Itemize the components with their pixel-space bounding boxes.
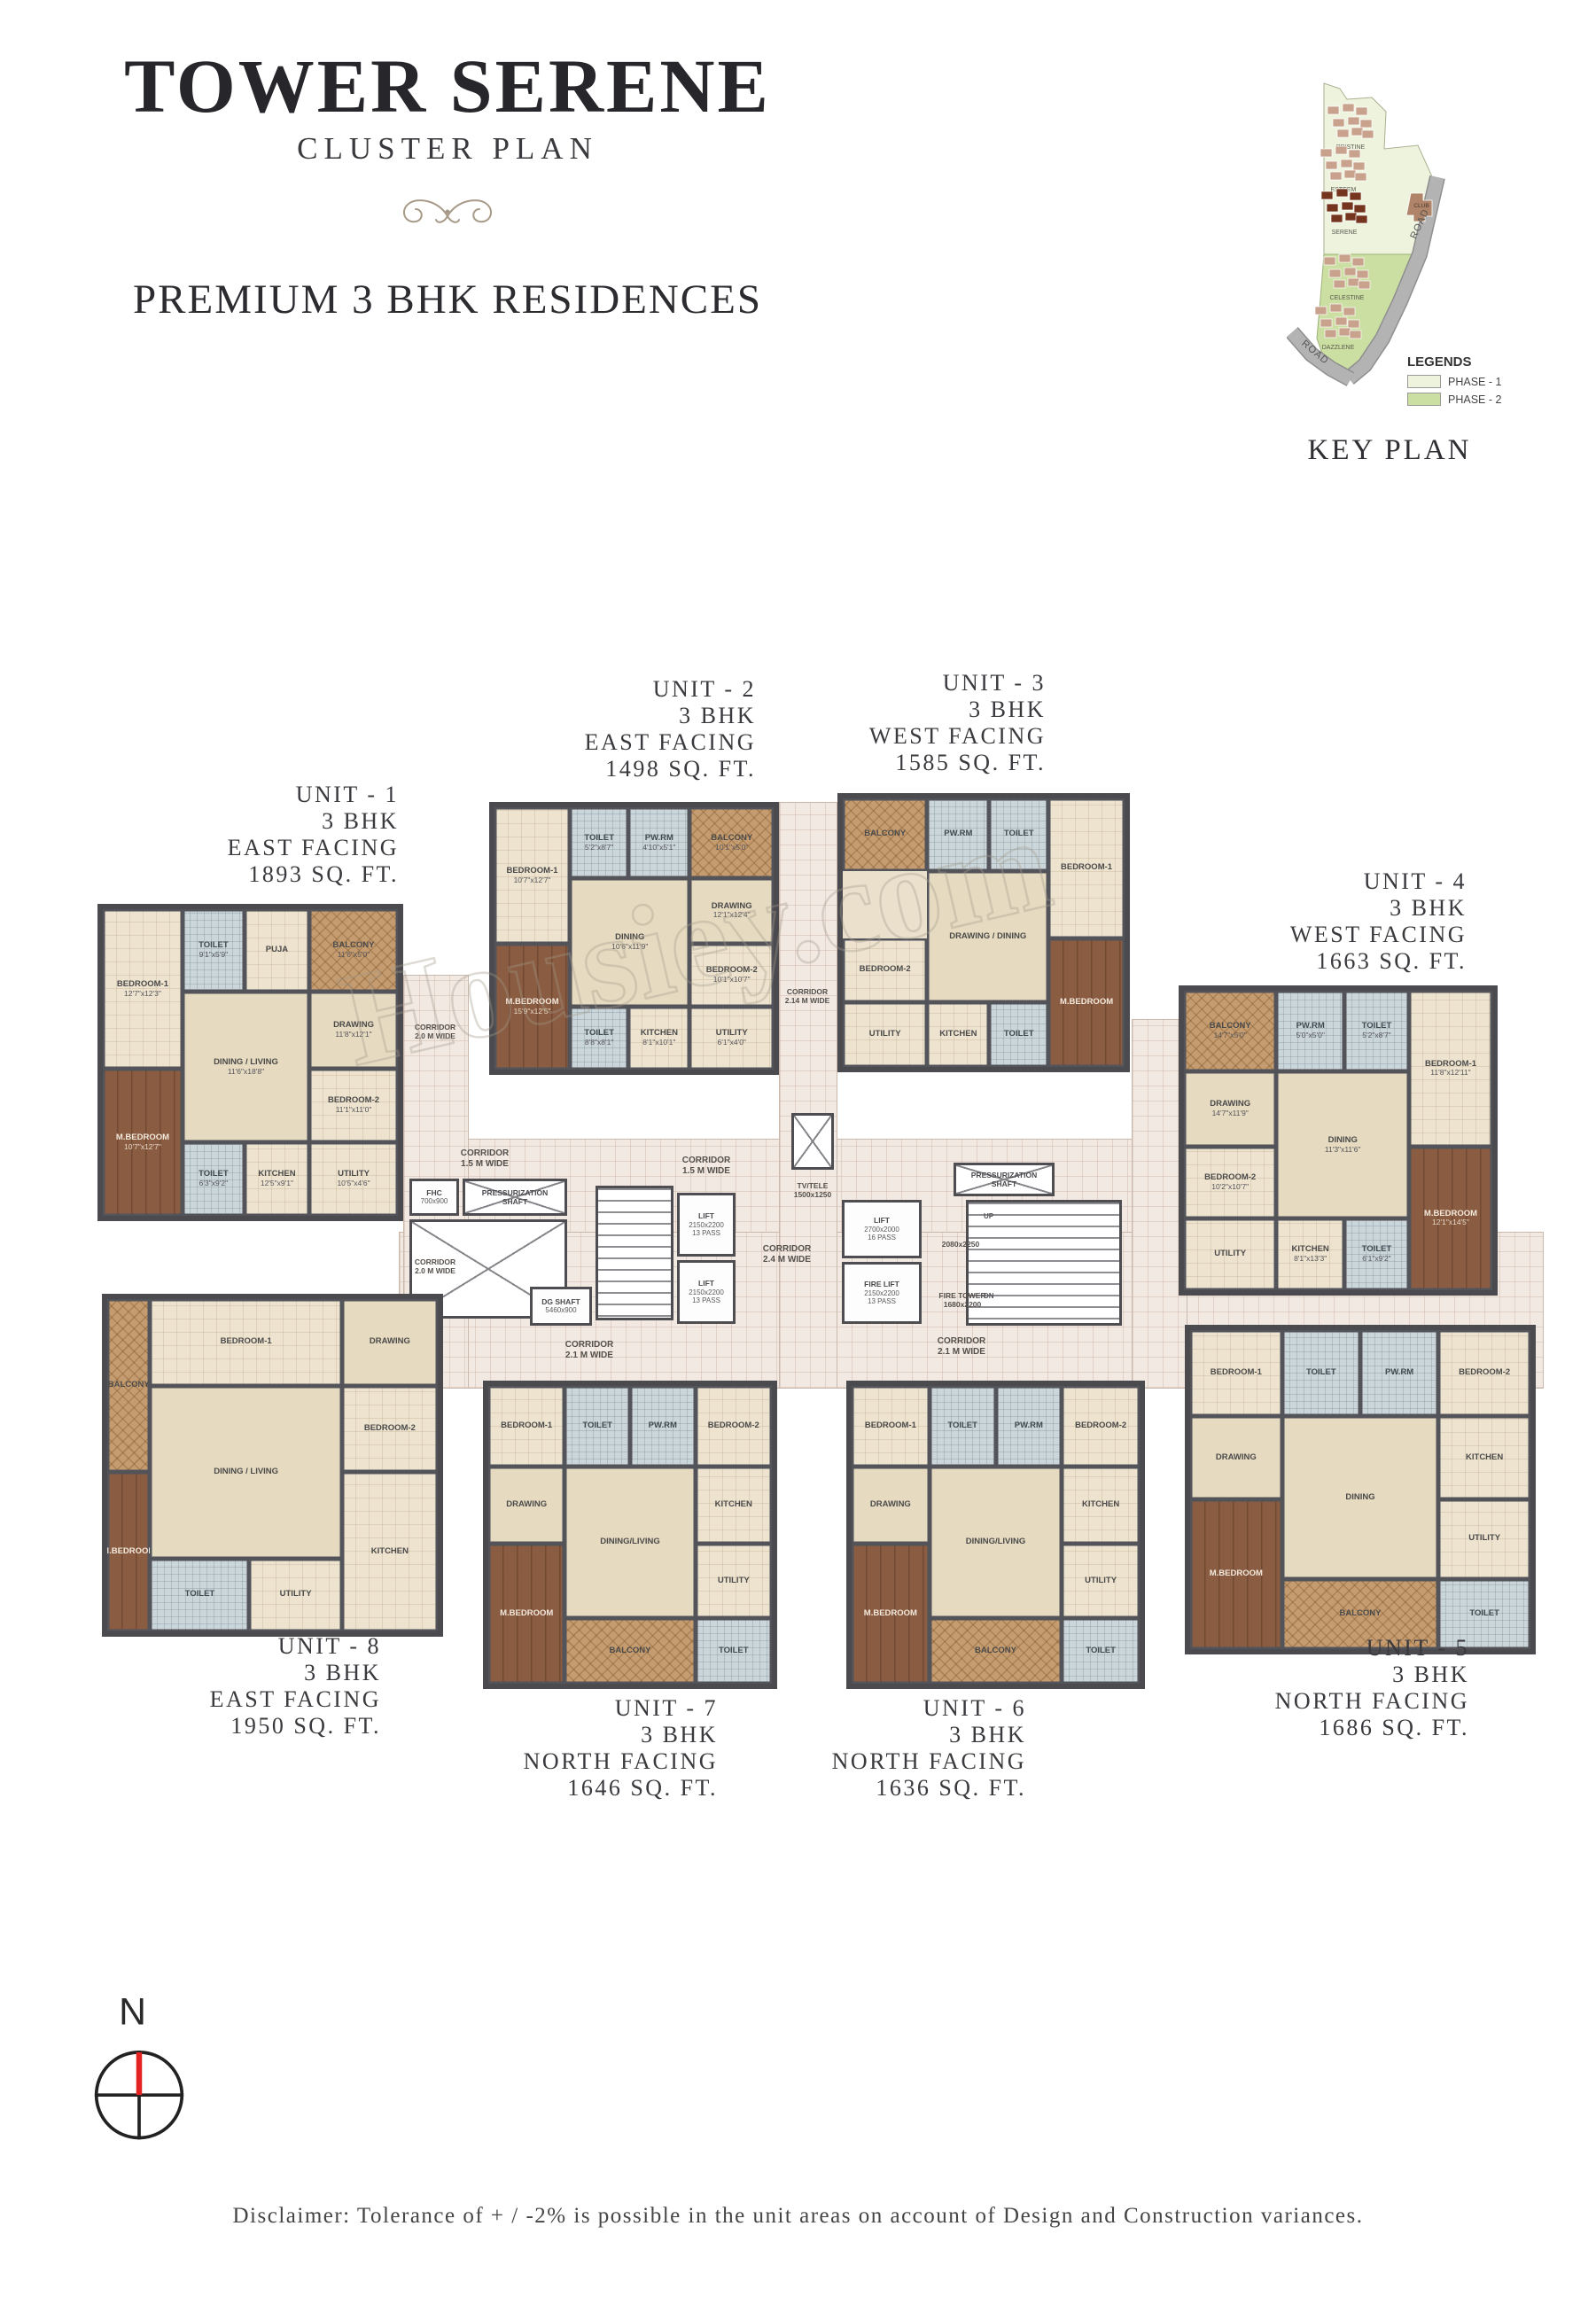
- unit-6-label: UNIT - 63 BHKNORTH FACING1636 SQ. FT.: [822, 1695, 1026, 1802]
- unit-5-room-b1-bedroom-1: BEDROOM-1: [1190, 1330, 1282, 1416]
- unit-2-label: UNIT - 23 BHKEAST FACING1498 SQ. FT.: [549, 676, 756, 782]
- unit-1-room-bal-balcony: BALCONY11'6"x5'0": [309, 909, 398, 992]
- room-label: DRAWING: [370, 1337, 410, 1347]
- legends: LEGENDS PHASE - 1 PHASE - 2: [1407, 354, 1501, 410]
- legends-title: LEGENDS: [1407, 354, 1501, 370]
- room-label: BEDROOM-1: [221, 1337, 272, 1347]
- unit-5-room-liv-dining: DINING: [1282, 1416, 1439, 1579]
- room-dimension: 8'1"x10'1": [642, 1039, 675, 1047]
- lift-2-dim: 2150x2200: [689, 1288, 724, 1297]
- unit-2-room-t2-toilet: TOILET8'8"x8'1": [570, 1007, 628, 1070]
- compass-north-label: N: [119, 1990, 146, 2033]
- unit-2-room-dr-drawing: DRAWING12'1"x12'4": [689, 878, 774, 944]
- corridor-1-5-label-b: CORRIDOR 1.5 M WIDE: [658, 1156, 755, 1176]
- lift-2-cap: 13 PASS: [692, 1296, 720, 1305]
- room-label: BALCONY: [108, 1381, 150, 1390]
- room-label: M.BEDROOM: [107, 1547, 150, 1557]
- room-label: TOILET: [185, 1590, 215, 1600]
- unit-6-bhk: 3 BHK: [822, 1722, 1026, 1748]
- unit-2-room-liv-dining: DINING10'6"x11'9": [570, 878, 689, 1007]
- room-label: UTILITY: [1214, 1249, 1246, 1259]
- fire-tower-dim: 1680x2200: [944, 1300, 982, 1309]
- fire-tower-text: FIRE TOWER: [938, 1291, 985, 1300]
- unit-7-room-liv-dining-living: DINING/LIVING: [564, 1467, 695, 1618]
- fire-lift-label: FIRE LIFT: [864, 1280, 899, 1288]
- unit-5-bhk: 3 BHK: [1265, 1662, 1469, 1688]
- room-label: BEDROOM-1: [506, 867, 557, 876]
- unit-8-room-b2-bedroom-2: BEDROOM-2: [342, 1386, 438, 1473]
- room-dimension: 10'5"x4'6": [337, 1179, 370, 1188]
- room-dimension: 10'2"x10'7": [1211, 1183, 1249, 1192]
- press-left-label: PRESSURIZATION SHAFT: [482, 1188, 548, 1206]
- room-dimension: 12'5"x9'1": [261, 1179, 293, 1188]
- unit-7-bhk: 3 BHK: [514, 1722, 718, 1748]
- room-label: TOILET: [1086, 1646, 1116, 1656]
- unit-1-room-liv-dining-living: DINING / LIVING11'6"x18'8": [183, 992, 309, 1142]
- room-label: UTILITY: [280, 1590, 312, 1600]
- lift-2: LIFT 2150x2200 13 PASS: [677, 1260, 736, 1324]
- unit-4-floor-plan: BALCONY14'7"x5'0"PW.RM5'0"x5'0"TOILET5'2…: [1179, 985, 1498, 1296]
- lift-1: LIFT 2150x2200 13 PASS: [677, 1193, 736, 1257]
- room-dimension: 11'6"x18'8": [228, 1068, 264, 1077]
- unit-4-room-dr-drawing: DRAWING14'7"x11'9": [1184, 1071, 1276, 1147]
- tv-tele-shaft: [791, 1113, 834, 1170]
- unit-6-room-dr-drawing: DRAWING: [852, 1467, 930, 1544]
- room-dimension: 14'7"x5'0": [1214, 1031, 1247, 1040]
- unit-1-label: UNIT - 13 BHKEAST FACING1893 SQ. FT.: [195, 782, 399, 888]
- room-label: BEDROOM-2: [1459, 1368, 1510, 1378]
- room-label: BEDROOM-2: [364, 1424, 416, 1434]
- cluster-plan-sheet: TOWER SERENE CLUSTER PLAN PREMIUM 3 BHK …: [0, 0, 1596, 2304]
- unit-6-room-pw-pw-rm: PW.RM: [996, 1386, 1063, 1467]
- unit-8-room-m-m-bedroom: M.BEDROOM: [107, 1472, 150, 1631]
- dg-shaft: DG SHAFT 5460x900: [530, 1287, 592, 1326]
- fhc-shaft: FHC 700x900: [409, 1179, 459, 1216]
- room-label: TOILET: [1004, 1030, 1034, 1039]
- unit-1-room-k-kitchen: KITCHEN12'5"x9'1": [245, 1142, 309, 1216]
- phase1-label: PHASE - 1: [1448, 376, 1501, 388]
- room-label: PUJA: [266, 946, 288, 955]
- cluster-label-celestine: CELESTINE: [1330, 295, 1365, 301]
- unit-7-room-u-utility: UTILITY: [696, 1544, 772, 1618]
- pressurization-shaft-right: PRESSURIZATION SHAFT: [954, 1163, 1055, 1196]
- page-title: TOWER SERENE: [53, 46, 842, 126]
- unit-3-room-k-kitchen: KITCHEN: [927, 1002, 989, 1067]
- tv-tele-text: TV/TELE: [798, 1181, 829, 1190]
- unit-3-floor-plan: BEDROOM-1TOILETPW.RMBALCONYDRAWING / DIN…: [837, 793, 1130, 1072]
- unit-5-room-pw-pw-rm: PW.RM: [1360, 1330, 1438, 1416]
- unit-1-room-t1-toilet: TOILET9'1"x5'9": [183, 909, 245, 992]
- unit-2-room-m-m-bedroom: M.BEDROOM15'9"x12'5": [494, 944, 570, 1070]
- unit-5-room-b2-bedroom-2: BEDROOM-2: [1438, 1330, 1530, 1416]
- compass-icon: N: [82, 1983, 197, 2165]
- lift-3-dim: 2700x2000: [864, 1226, 899, 1234]
- room-label: BEDROOM-1: [865, 1421, 916, 1431]
- room-dimension: 12'7"x12'3": [124, 990, 161, 999]
- stairs-up-label: UP: [984, 1212, 993, 1220]
- unit-2-floor-plan: BEDROOM-110'7"x12'7"TOILET5'2"x8'7"PW.RM…: [489, 802, 779, 1075]
- room-label: M.BEDROOM: [500, 1609, 553, 1619]
- room-label: KITCHEN: [1082, 1500, 1119, 1510]
- room-label: TOILET: [719, 1646, 749, 1656]
- room-label: DRAWING: [1216, 1453, 1257, 1463]
- fhc-label: FHC: [426, 1188, 441, 1197]
- unit-8-room-k-kitchen: KITCHEN: [342, 1472, 438, 1631]
- unit-3-room-t2-toilet: TOILET: [989, 1002, 1048, 1067]
- unit-1-room-dr-drawing: DRAWING11'8"x12'1": [309, 992, 398, 1069]
- phase1-swatch: [1407, 375, 1441, 388]
- unit-6-room-k-kitchen: KITCHEN: [1062, 1467, 1140, 1544]
- room-label: TOILET: [1004, 829, 1034, 839]
- unit-3-room-liv-drawing-dining: DRAWING / DINING: [927, 871, 1048, 1002]
- room-dimension: 10'6"x11'9": [611, 943, 648, 952]
- unit-4-room-b2-bedroom-2: BEDROOM-210'2"x10'7": [1184, 1147, 1276, 1218]
- unit-1-room-u-utility: UTILITY10'5"x4'6": [309, 1142, 398, 1216]
- unit-6-room-bal-balcony: BALCONY: [930, 1618, 1063, 1684]
- room-dimension: 6'3"x9'2": [199, 1179, 228, 1188]
- unit-7-area: 1646 SQ. FT.: [514, 1775, 718, 1802]
- room-label: BALCONY: [1339, 1609, 1381, 1619]
- room-label: DRAWING: [506, 1500, 547, 1510]
- unit-7-room-m-m-bedroom: M.BEDROOM: [488, 1544, 564, 1684]
- unit-4-room-t2-toilet: TOILET6'1"x9'2": [1344, 1218, 1409, 1290]
- unit-1-room-t2-toilet: TOILET6'3"x9'2": [183, 1142, 245, 1216]
- unit-3-facing: WEST FACING: [842, 723, 1046, 750]
- room-label: BALCONY: [975, 1646, 1016, 1656]
- unit-7-label: UNIT - 73 BHKNORTH FACING1646 SQ. FT.: [514, 1695, 718, 1802]
- dg-shaft-label: DG SHAFT: [541, 1297, 580, 1306]
- disclaimer: Disclaimer: Tolerance of + / -2% is poss…: [0, 2204, 1596, 2229]
- room-label: PW.RM: [1385, 1368, 1413, 1378]
- room-dimension: 10'7"x12'7": [124, 1143, 161, 1152]
- room-label: BALCONY: [711, 834, 752, 844]
- room-dimension: 4'10"x5'1": [642, 844, 675, 852]
- unit-4-room-bal-balcony: BALCONY14'7"x5'0": [1184, 991, 1276, 1071]
- cluster-label-dazzlene: DAZZLENE: [1322, 345, 1355, 351]
- lift-3-cap: 16 PASS: [868, 1234, 896, 1242]
- unit-2-room-t1-toilet: TOILET5'2"x8'7": [570, 807, 628, 878]
- room-dimension: 14'7"x11'9": [1212, 1109, 1249, 1118]
- unit-1-room-m-m-bedroom: M.BEDROOM10'7"x12'7": [103, 1069, 183, 1216]
- room-label: PW.RM: [1015, 1421, 1043, 1431]
- unit-6-floor-plan: BEDROOM-1TOILETPW.RMBEDROOM-2DRAWINGDINI…: [846, 1381, 1145, 1689]
- unit-5-room-u-utility: UTILITY: [1438, 1499, 1530, 1579]
- unit-2-area: 1498 SQ. FT.: [549, 756, 756, 782]
- room-dimension: 11'8"x12'11": [1430, 1069, 1470, 1078]
- unit-7-floor-plan: BEDROOM-1TOILETPW.RMBEDROOM-2DRAWINGDINI…: [483, 1381, 777, 1689]
- unit-4-label: UNIT - 43 BHKWEST FACING1663 SQ. FT.: [1263, 868, 1467, 975]
- room-dimension: 5'0"x5'0": [1296, 1031, 1324, 1040]
- stairs-dn-label: DN: [984, 1292, 994, 1300]
- room-dimension: 12'1"x14'5": [1432, 1218, 1469, 1227]
- unit-5-area: 1686 SQ. FT.: [1265, 1715, 1469, 1741]
- unit-4-name: UNIT - 4: [1263, 868, 1467, 895]
- page-subtitle: CLUSTER PLAN: [53, 131, 842, 167]
- unit-3-bhk: 3 BHK: [842, 697, 1046, 723]
- tagline: PREMIUM 3 BHK RESIDENCES: [53, 276, 842, 323]
- unit-3-room-m-m-bedroom: M.BEDROOM: [1048, 938, 1125, 1067]
- unit-4-room-u-utility: UTILITY: [1184, 1218, 1276, 1290]
- corridor-strip-2: [779, 802, 837, 1389]
- fire-lift: FIRE LIFT 2150x2200 13 PASS: [842, 1262, 922, 1324]
- room-label: UTILITY: [1468, 1534, 1500, 1544]
- room-dimension: 11'6"x5'0": [338, 951, 370, 960]
- unit-4-area: 1663 SQ. FT.: [1263, 948, 1467, 975]
- unit-2-room-k-kitchen: KITCHEN8'1"x10'1": [628, 1007, 689, 1070]
- unit-3-room-u-utility: UTILITY: [843, 1002, 927, 1067]
- room-label: DINING: [1328, 1136, 1358, 1146]
- room-dimension: 5'2"x8'7": [585, 844, 613, 852]
- corridor-2-4-label: CORRIDOR 2.4 M WIDE: [741, 1244, 833, 1265]
- unit-4-room-b1-bedroom-1: BEDROOM-111'8"x12'11": [1409, 991, 1492, 1147]
- unit-1-name: UNIT - 1: [195, 782, 399, 808]
- key-plan-title: KEY PLAN: [1296, 434, 1483, 467]
- corridor-2-0-label-a: CORRIDOR 2.0 M WIDE: [403, 1024, 467, 1041]
- room-label: PW.RM: [944, 829, 972, 839]
- unit-8-room-liv-dining-living: DINING / LIVING: [150, 1386, 341, 1559]
- room-dimension: 11'1"x11'0": [336, 1106, 372, 1115]
- room-label: UTILITY: [1085, 1576, 1117, 1586]
- unit-6-room-t1-toilet: TOILET: [930, 1386, 996, 1467]
- unit-2-facing: EAST FACING: [549, 729, 756, 756]
- unit-8-facing: EAST FACING: [177, 1686, 381, 1713]
- unit-3-room-t1-toilet: TOILET: [989, 798, 1048, 871]
- unit-1-bhk: 3 BHK: [195, 808, 399, 835]
- unit-4-room-m-m-bedroom: M.BEDROOM12'1"x14'5": [1409, 1147, 1492, 1290]
- unit-3-room-bal-balcony: BALCONY: [843, 798, 927, 871]
- room-label: TOILET: [947, 1421, 977, 1431]
- fire-lift-cap: 13 PASS: [868, 1297, 896, 1306]
- room-label: DINING: [1345, 1493, 1374, 1503]
- room-label: DRAWING: [870, 1500, 911, 1510]
- unit-8-room-u-utility: UTILITY: [249, 1559, 341, 1632]
- unit-7-room-b2-bedroom-2: BEDROOM-2: [696, 1386, 772, 1467]
- room-dimension: 8'8"x8'1": [585, 1039, 613, 1047]
- unit-3-name: UNIT - 3: [842, 670, 1046, 697]
- unit-7-room-dr-drawing: DRAWING: [488, 1467, 564, 1544]
- room-label: M.BEDROOM: [864, 1609, 917, 1619]
- unit-7-facing: NORTH FACING: [514, 1748, 718, 1775]
- room-dimension: 10'1"x5'0": [715, 844, 748, 852]
- shaft-dim-label: 2080x2250: [925, 1241, 996, 1249]
- room-label: M.BEDROOM: [116, 1133, 169, 1143]
- unit-1-area: 1893 SQ. FT.: [195, 861, 399, 888]
- fire-lift-dim: 2150x2200: [864, 1289, 899, 1298]
- unit-4-facing: WEST FACING: [1263, 922, 1467, 948]
- unit-6-room-u-utility: UTILITY: [1062, 1544, 1140, 1618]
- room-label: BEDROOM-1: [117, 980, 168, 990]
- room-label: DINING/LIVING: [966, 1537, 1026, 1547]
- corridor-2-1-label-a: CORRIDOR 2.1 M WIDE: [532, 1340, 647, 1360]
- room-label: TOILET: [582, 1421, 612, 1431]
- ornament-flourish-icon: [377, 190, 518, 234]
- room-label: BALCONY: [864, 829, 906, 839]
- unit-3-room-pw-pw-rm: PW.RM: [927, 798, 989, 871]
- unit-8-label: UNIT - 83 BHKEAST FACING1950 SQ. FT.: [177, 1633, 381, 1740]
- unit-8-room-b1-bedroom-1: BEDROOM-1: [150, 1299, 341, 1386]
- room-label: M.BEDROOM: [1060, 998, 1113, 1008]
- tv-tele-label: TV/TELE 1500x1250: [780, 1173, 845, 1199]
- unit-1-room-b2-bedroom-2: BEDROOM-211'1"x11'0": [309, 1069, 398, 1142]
- room-dimension: 9'1"x5'9": [199, 951, 228, 960]
- room-label: BEDROOM-2: [708, 1421, 759, 1431]
- unit-4-bhk: 3 BHK: [1263, 895, 1467, 922]
- legend-row-phase2: PHASE - 2: [1407, 393, 1501, 406]
- unit-1-facing: EAST FACING: [195, 835, 399, 861]
- room-dimension: 6'1"x4'0": [718, 1039, 746, 1047]
- lift-1-cap: 13 PASS: [692, 1229, 720, 1238]
- room-label: UTILITY: [869, 1030, 901, 1039]
- room-label: BEDROOM-2: [1075, 1421, 1126, 1431]
- unit-8-area: 1950 SQ. FT.: [177, 1713, 381, 1740]
- unit-8-bhk: 3 BHK: [177, 1660, 381, 1686]
- corridor-2-0-label-b: CORRIDOR 2.0 M WIDE: [403, 1258, 467, 1276]
- room-label: PW.RM: [645, 834, 673, 844]
- unit-5-room-k-kitchen: KITCHEN: [1438, 1416, 1530, 1499]
- cluster-label-serene: SERENE: [1332, 230, 1358, 236]
- room-label: TOILET: [584, 834, 614, 844]
- room-label: KITCHEN: [371, 1547, 409, 1557]
- unit-3-room-b1-bedroom-1: BEDROOM-1: [1048, 798, 1125, 938]
- dg-shaft-dim: 5460x900: [545, 1306, 576, 1315]
- room-dimension: 12'1"x12'4": [713, 911, 751, 920]
- unit-6-room-b1-bedroom-1: BEDROOM-1: [852, 1386, 930, 1467]
- unit-8-floor-plan: BALCONYBEDROOM-1DRAWINGDINING / LIVINGBE…: [102, 1294, 443, 1637]
- unit-8-room-t2-toilet: TOILET: [150, 1559, 249, 1632]
- pressurization-shaft-left: PRESSURIZATION SHAFT: [463, 1179, 567, 1216]
- unit-2-name: UNIT - 2: [549, 676, 756, 703]
- unit-4-room-k-kitchen: KITCHEN8'1"x13'3": [1276, 1218, 1344, 1290]
- lift-2-label: LIFT: [698, 1279, 714, 1288]
- phase2-label: PHASE - 2: [1448, 393, 1501, 406]
- unit-4-room-pw-pw-rm: PW.RM5'0"x5'0": [1276, 991, 1344, 1071]
- room-label: TOILET: [1469, 1609, 1499, 1619]
- room-dimension: 11'3"x11'6": [1325, 1146, 1361, 1155]
- unit-2-room-u-utility: UTILITY6'1"x4'0": [689, 1007, 774, 1070]
- tv-tele-dim: 1500x1250: [794, 1190, 832, 1199]
- room-label: DRAWING / DINING: [949, 932, 1026, 942]
- unit-6-room-liv-dining-living: DINING/LIVING: [930, 1467, 1063, 1618]
- room-dimension: 10'1"x10'7": [713, 976, 751, 985]
- room-dimension: 10'7"x12'7": [514, 876, 551, 885]
- phase2-swatch: [1407, 393, 1441, 406]
- unit-1-floor-plan: BEDROOM-112'7"x12'3"TOILET9'1"x5'9"PUJAB…: [97, 904, 403, 1221]
- room-label: BEDROOM-1: [1061, 863, 1112, 873]
- lift-1-label: LIFT: [698, 1211, 714, 1220]
- room-label: TOILET: [1306, 1368, 1336, 1378]
- unit-3-label: UNIT - 33 BHKWEST FACING1585 SQ. FT.: [842, 670, 1046, 776]
- room-label: KITCHEN: [939, 1030, 977, 1039]
- room-dimension: 8'1"x13'3": [1294, 1255, 1327, 1264]
- unit-7-room-k-kitchen: KITCHEN: [696, 1467, 772, 1544]
- unit-8-room-bal-balcony: BALCONY: [107, 1299, 150, 1472]
- room-dimension: 6'1"x9'2": [1362, 1255, 1390, 1264]
- unit-6-name: UNIT - 6: [822, 1695, 1026, 1722]
- unit-2-room-bal-balcony: BALCONY10'1"x5'0": [689, 807, 774, 878]
- header: TOWER SERENE CLUSTER PLAN PREMIUM 3 BHK …: [53, 46, 842, 323]
- room-dimension: 11'8"x12'1": [335, 1031, 371, 1039]
- room-dimension: 5'2"x8'7": [1362, 1031, 1390, 1040]
- room-label: BALCONY: [609, 1646, 650, 1656]
- corridor-1-5-label-a: CORRIDOR 1.5 M WIDE: [436, 1148, 533, 1169]
- unit-7-room-t1-toilet: TOILET: [564, 1386, 630, 1467]
- unit-1-room-b1-bedroom-1: BEDROOM-112'7"x12'3": [103, 909, 183, 1069]
- unit-5-name: UNIT - 5: [1265, 1635, 1469, 1662]
- unit-6-room-b2-bedroom-2: BEDROOM-2: [1062, 1386, 1140, 1467]
- unit-4-room-t1-toilet: TOILET5'2"x8'7": [1344, 991, 1409, 1071]
- unit-5-floor-plan: BEDROOM-1TOILETPW.RMBEDROOM-2DRAWINGDINI…: [1185, 1325, 1536, 1654]
- room-label: M.BEDROOM: [1210, 1569, 1263, 1579]
- lift-1-dim: 2150x2200: [689, 1221, 724, 1230]
- corridor-2-1-label-b: CORRIDOR 2.1 M WIDE: [904, 1336, 1019, 1357]
- unit-6-area: 1636 SQ. FT.: [822, 1775, 1026, 1802]
- corridor-2-14-label: CORRIDOR 2.14 M WIDE: [779, 988, 836, 1006]
- unit-5-room-t1-toilet: TOILET: [1282, 1330, 1360, 1416]
- fhc-dim: 700x900: [421, 1197, 448, 1206]
- room-label: KITCHEN: [715, 1500, 752, 1510]
- room-label: DINING / LIVING: [214, 1467, 278, 1477]
- unit-3-room-b2-bedroom-2: BEDROOM-2: [843, 938, 927, 1003]
- unit-7-room-pw-pw-rm: PW.RM: [630, 1386, 696, 1467]
- unit-8-name: UNIT - 8: [177, 1633, 381, 1660]
- unit-5-room-dr-drawing: DRAWING: [1190, 1416, 1282, 1499]
- press-right-label: PRESSURIZATION SHAFT: [971, 1171, 1037, 1188]
- unit-2-room-b2-bedroom-2: BEDROOM-210'1"x10'7": [689, 944, 774, 1007]
- room-dimension: 15'9"x12'5": [514, 1008, 551, 1016]
- room-label: BEDROOM-1: [1211, 1368, 1262, 1378]
- lift-3-label: LIFT: [874, 1216, 890, 1225]
- unit-5-room-m-m-bedroom: M.BEDROOM: [1190, 1499, 1282, 1649]
- unit-6-room-t2-toilet: TOILET: [1062, 1618, 1140, 1684]
- room-label: M.BEDROOM: [505, 998, 558, 1008]
- unit-4-room-liv-dining: DINING11'3"x11'6": [1276, 1071, 1409, 1218]
- unit-7-room-bal-balcony: BALCONY: [564, 1618, 695, 1684]
- unit-3-area: 1585 SQ. FT.: [842, 750, 1046, 776]
- unit-2-room-pw-pw-rm: PW.RM4'10"x5'1": [628, 807, 689, 878]
- unit-2-room-b1-bedroom-1: BEDROOM-110'7"x12'7": [494, 807, 570, 944]
- unit-2-bhk: 3 BHK: [549, 703, 756, 729]
- room-label: PW.RM: [649, 1421, 677, 1431]
- lift-3: LIFT 2700x2000 16 PASS: [842, 1200, 922, 1258]
- unit-6-facing: NORTH FACING: [822, 1748, 1026, 1775]
- staircase-left: [596, 1186, 673, 1320]
- unit-1-room-pw-puja: PUJA: [245, 909, 309, 992]
- unit-8-room-dr-drawing: DRAWING: [342, 1299, 438, 1386]
- unit-7-room-b1-bedroom-1: BEDROOM-1: [488, 1386, 564, 1467]
- room-label: DINING/LIVING: [600, 1537, 660, 1547]
- unit-7-room-t2-toilet: TOILET: [696, 1618, 772, 1684]
- room-label: BEDROOM-1: [501, 1421, 552, 1431]
- unit-5-label: UNIT - 53 BHKNORTH FACING1686 SQ. FT.: [1265, 1635, 1469, 1741]
- room-label: BEDROOM-2: [860, 965, 911, 975]
- room-label: UTILITY: [718, 1576, 750, 1586]
- room-label: KITCHEN: [1466, 1453, 1503, 1463]
- legend-row-phase1: PHASE - 1: [1407, 375, 1501, 388]
- unit-5-facing: NORTH FACING: [1265, 1688, 1469, 1715]
- unit-6-room-m-m-bedroom: M.BEDROOM: [852, 1544, 930, 1684]
- unit-7-name: UNIT - 7: [514, 1695, 718, 1722]
